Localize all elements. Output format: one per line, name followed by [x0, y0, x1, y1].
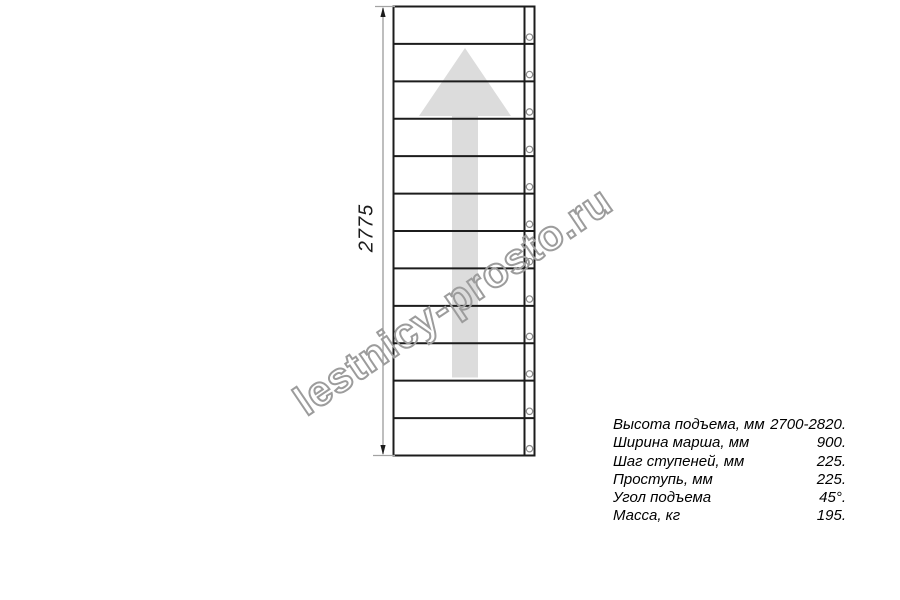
- fastener-circle: [526, 333, 532, 339]
- fastener-circle: [526, 71, 532, 77]
- spec-value: 900.: [817, 434, 846, 452]
- fastener-circle: [526, 371, 532, 377]
- fastener-circle: [526, 184, 532, 190]
- fastener-circle: [526, 34, 532, 40]
- spec-value: 45°.: [819, 489, 846, 507]
- fastener-circle: [526, 296, 532, 302]
- dimension-arrow-top: [380, 7, 385, 17]
- fastener-circle: [526, 221, 532, 227]
- fastener-circle: [526, 146, 532, 152]
- fastener-circle: [526, 446, 532, 452]
- spec-label: Масса, кг: [613, 507, 680, 525]
- drawing-canvas: 2775 lestnicy-prosto.ru Высота подъема, …: [0, 0, 900, 600]
- spec-value: 195.: [817, 507, 846, 525]
- spec-row: Ширина марша, мм 900.: [613, 434, 846, 452]
- spec-table: Высота подъема, мм 2700-2820. Ширина мар…: [613, 416, 846, 526]
- fastener-circle: [526, 258, 532, 264]
- spec-label: Ширина марша, мм: [613, 434, 749, 452]
- spec-label: Высота подъема, мм: [613, 416, 765, 434]
- spec-label: Проступь, мм: [613, 471, 713, 489]
- spec-value: 225.: [817, 453, 846, 471]
- spec-value: 225.: [817, 471, 846, 489]
- spec-label: Угол подъема: [613, 489, 711, 507]
- spec-row: Шаг ступеней, мм 225.: [613, 453, 846, 471]
- fastener-circle: [526, 408, 532, 414]
- spec-row: Высота подъема, мм 2700-2820.: [613, 416, 846, 434]
- dimension-label: 2775: [356, 204, 379, 253]
- spec-row: Угол подъема 45°.: [613, 489, 846, 507]
- direction-up-arrow: [419, 48, 511, 378]
- spec-row: Проступь, мм 225.: [613, 471, 846, 489]
- spec-label: Шаг ступеней, мм: [613, 453, 744, 471]
- spec-row: Масса, кг 195.: [613, 507, 846, 525]
- spec-value: 2700-2820.: [770, 416, 846, 434]
- dimension-arrow-bottom: [380, 445, 385, 455]
- fastener-circle: [526, 109, 532, 115]
